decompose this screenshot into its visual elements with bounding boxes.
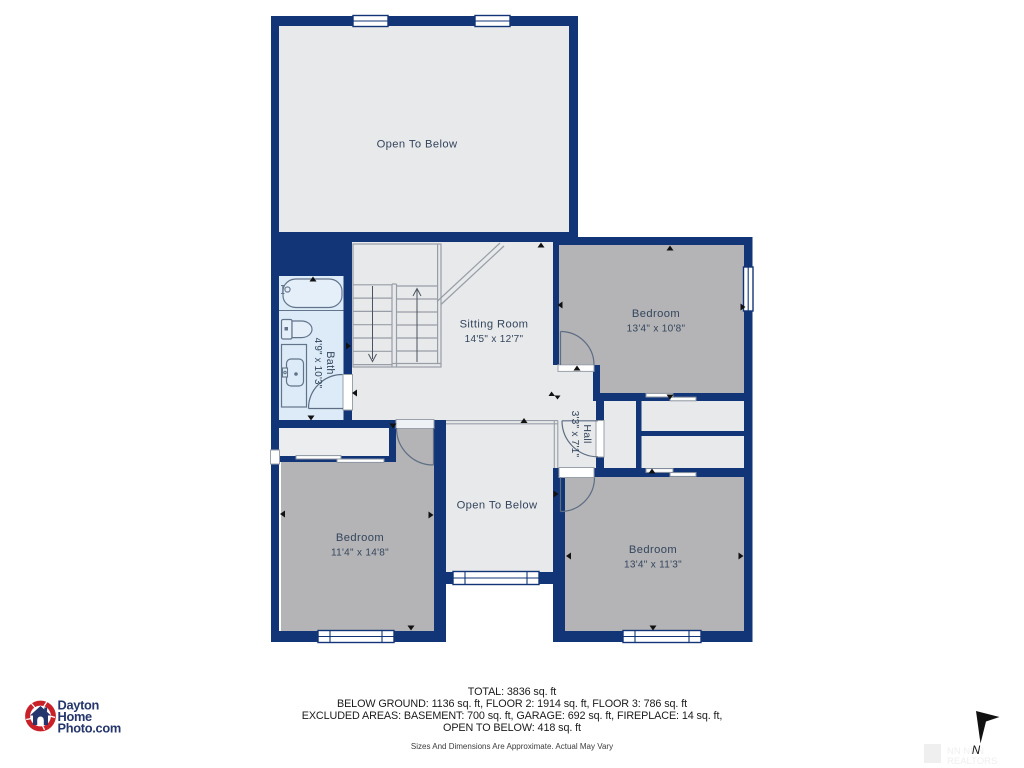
- svg-text:Bedroom: Bedroom: [336, 532, 384, 544]
- svg-text:Bath: Bath: [324, 351, 336, 374]
- svg-text:OPEN TO BELOW: 418 sq. ft: OPEN TO BELOW: 418 sq. ft: [443, 722, 581, 734]
- svg-text:N: N: [972, 745, 981, 757]
- svg-text:13'4" x 10'8": 13'4" x 10'8": [627, 324, 686, 335]
- svg-text:Sitting Room: Sitting Room: [460, 319, 529, 331]
- svg-text:3'3" x 7'1": 3'3" x 7'1": [569, 411, 580, 458]
- svg-text:BELOW GROUND: 1136 sq. ft, FLO: BELOW GROUND: 1136 sq. ft, FLOOR 2: 1914…: [337, 698, 687, 710]
- svg-text:EXCLUDED AREAS: BASEMENT: 700: EXCLUDED AREAS: BASEMENT: 700 sq. ft, GA…: [302, 710, 723, 722]
- svg-text:REALTORS: REALTORS: [947, 756, 997, 767]
- svg-text:Open To Below: Open To Below: [377, 139, 458, 151]
- svg-text:14'5" x 12'7": 14'5" x 12'7": [465, 334, 524, 345]
- svg-text:Sizes And Dimensions Are Appro: Sizes And Dimensions Are Approximate. Ac…: [411, 742, 613, 751]
- svg-text:Photo.com: Photo.com: [58, 721, 121, 736]
- svg-text:11'4" x 14'8": 11'4" x 14'8": [331, 548, 389, 559]
- svg-text:Bedroom: Bedroom: [632, 308, 680, 320]
- svg-text:Open To Below: Open To Below: [457, 500, 538, 512]
- svg-text:Bedroom: Bedroom: [629, 544, 677, 556]
- svg-text:4'9" x 10'3": 4'9" x 10'3": [312, 338, 323, 389]
- svg-text:TOTAL: 3836 sq. ft: TOTAL: 3836 sq. ft: [468, 686, 557, 698]
- svg-text:13'4" x 11'3": 13'4" x 11'3": [624, 560, 682, 571]
- svg-text:Hall: Hall: [581, 424, 593, 443]
